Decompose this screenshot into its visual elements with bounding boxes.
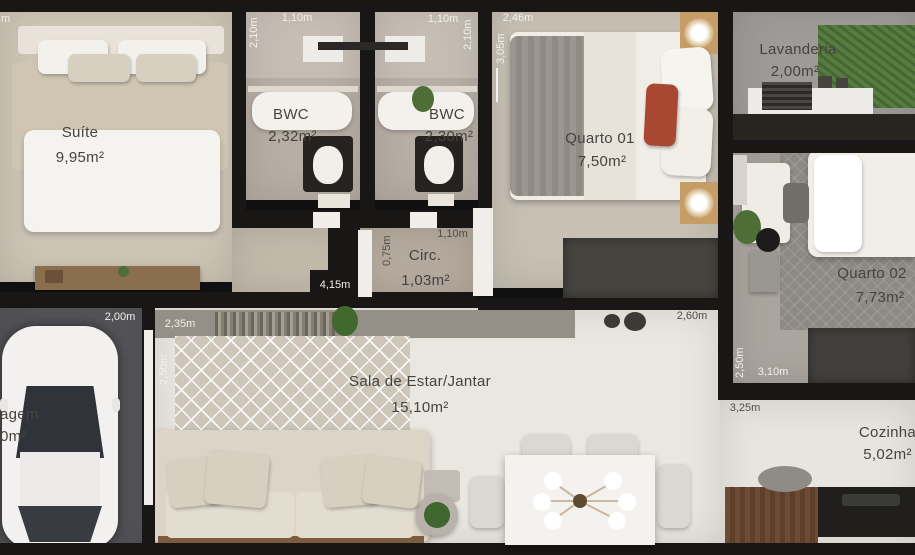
- sala-shelf-plant: [332, 306, 358, 336]
- quarto02-chair: [756, 228, 780, 252]
- dim-quarto01-height: 3,05m: [495, 33, 507, 64]
- dim-top-left-fragment: m: [1, 13, 10, 25]
- car-roof: [20, 452, 100, 508]
- bwc1-door: [313, 212, 340, 228]
- room-area-sala: 15,10m²: [345, 399, 495, 416]
- quarto02-pouf: [783, 183, 809, 223]
- quarto02-cabinet: [750, 250, 778, 292]
- quarto02-bed-pillows: [814, 155, 862, 252]
- dim-sala-rug-width: 2,35m: [156, 318, 204, 330]
- room-label-suite: Suíte: [20, 124, 140, 141]
- bwc2-shower-bar: [362, 42, 408, 50]
- room-area-quarto01: 7,50m²: [532, 153, 672, 170]
- sala-decor-bowl: [604, 314, 620, 328]
- room-area-circ: 1,03m²: [383, 272, 468, 289]
- dim-circ-height: 0,75m: [381, 235, 393, 266]
- room-label-quarto01: Quarto 01: [530, 130, 670, 147]
- lavanderia-dark-counter: [733, 114, 915, 142]
- dim-sala-height: 2,50m: [158, 354, 170, 385]
- car-mirror: [112, 398, 120, 412]
- dim-bwc1-height: 2,10m: [248, 17, 260, 48]
- bwc2-mat: [428, 194, 454, 206]
- quarto02-wardrobe: [808, 328, 915, 383]
- bwc2-toilet-seat: [424, 146, 454, 184]
- sofa-pillow: [361, 455, 422, 509]
- suite-sideboard-box: [45, 270, 63, 283]
- wall-quarto01-bottom: [478, 298, 733, 310]
- dining-chair: [658, 464, 690, 528]
- garagem-door: [144, 330, 153, 505]
- dim-bwc2-width: 1,10m: [418, 13, 468, 25]
- wall-between-bwcs: [360, 0, 375, 225]
- bwc1-shower-bar: [318, 42, 364, 50]
- room-area-suite: 9,95m²: [20, 149, 140, 166]
- kitchen-sink: [842, 494, 900, 506]
- dim-bwc2-height: 2,10m: [462, 19, 474, 50]
- quarto01-wardrobe: [563, 238, 718, 298]
- dim-sala-right-width: 2,60m: [668, 310, 716, 322]
- room-label-quarto02: Quarto 02: [822, 265, 915, 282]
- floor-plan: Suíte 9,95m² BWC 2,32m² BWC 2,30m² Quart…: [0, 0, 915, 555]
- room-label-garagem: agem: [0, 406, 46, 423]
- dim-garagem-width: 2,00m: [96, 311, 144, 323]
- sala-books: [215, 312, 335, 336]
- suite-plant: [118, 266, 129, 277]
- wall-quarto02-bottom: [733, 383, 915, 400]
- quarto01-lamp-top: [684, 18, 714, 48]
- room-label-bwc2: BWC: [402, 106, 492, 123]
- bwc1-toilet-seat: [313, 146, 343, 184]
- dim-quarto02-height: 2,50m: [734, 347, 746, 378]
- quarto02-shelf-items: [733, 155, 747, 205]
- dim-bwc1-width: 1,10m: [272, 12, 322, 24]
- bwc1-mat: [318, 194, 350, 208]
- room-area-bwc1: 2,32m²: [245, 128, 340, 145]
- dim-quarto02-width: 3,10m: [751, 366, 795, 378]
- sala-decor-bowl: [624, 312, 646, 331]
- lavanderia-washer: [762, 82, 812, 110]
- quarto01-lamp-bottom: [684, 188, 714, 218]
- room-label-cozinha: Cozinha: [840, 424, 915, 441]
- room-area-bwc2: 2,30m²: [400, 128, 498, 145]
- kitchen-stool: [758, 466, 812, 492]
- dim-circ-width: 1,10m: [430, 228, 475, 240]
- kitchen-cabinet: [725, 487, 818, 543]
- suite-bed-blanket: [24, 130, 220, 232]
- room-area-garagem: 0m²: [0, 428, 40, 445]
- room-area-quarto02: 7,73m²: [830, 289, 915, 306]
- circ-right-door: [473, 208, 493, 296]
- room-area-lavanderia: 2,00m²: [735, 63, 855, 80]
- wall-under-bwcs: [246, 210, 478, 228]
- car-rear-window: [18, 506, 102, 542]
- dining-chair: [470, 476, 504, 528]
- wall-suite-bwc: [232, 0, 246, 228]
- room-label-circ: Circ.: [385, 247, 465, 264]
- suite-pillow: [68, 54, 130, 82]
- sofa-pillow: [204, 449, 270, 508]
- wall-suite-bottom: [0, 292, 478, 308]
- room-area-cozinha: 5,02m²: [845, 446, 915, 463]
- dim-cozinha-width: 3,25m: [721, 402, 769, 414]
- wall-bottom: [0, 543, 915, 555]
- room-label-sala: Sala de Estar/Jantar: [320, 373, 520, 390]
- quarto01-sheet-fold: [584, 32, 636, 200]
- room-label-bwc1: BWC: [246, 106, 336, 123]
- dim-tick: [496, 68, 498, 102]
- bwc2-door: [410, 212, 437, 228]
- circ-left-door: [358, 230, 372, 297]
- wall-top: [0, 0, 915, 12]
- wall-lavanderia-quarto02: [733, 140, 915, 153]
- quarto01-blanket-gray: [510, 36, 586, 196]
- wall-bwc-quarto01: [478, 0, 492, 210]
- suite-pillow: [136, 54, 196, 82]
- dim-hall-length: 4,15m: [313, 279, 357, 291]
- side-table-plant: [424, 502, 450, 528]
- wall-quarto01-right: [718, 0, 733, 400]
- room-label-lavanderia: Lavanderia: [738, 41, 858, 58]
- dim-quarto01-width: 2,46m: [494, 12, 542, 24]
- chandelier-icon: [515, 462, 645, 540]
